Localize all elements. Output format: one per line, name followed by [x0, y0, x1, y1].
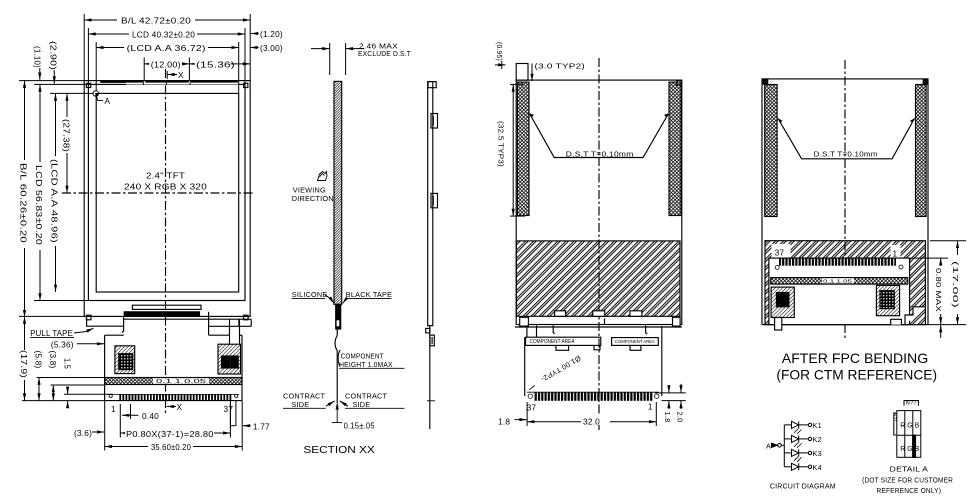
svg-text:D.S.T T=0.10mm: D.S.T T=0.10mm — [814, 149, 878, 158]
svg-text:K2: K2 — [813, 435, 822, 444]
svg-text:K4: K4 — [813, 463, 822, 472]
svg-text:B: B — [915, 446, 920, 453]
svg-text:CIRCUIT DIAGRAM: CIRCUIT DIAGRAM — [770, 482, 836, 491]
svg-text:A: A — [105, 96, 111, 106]
svg-text:B/L 60.26±0.20: B/L 60.26±0.20 — [19, 163, 29, 243]
svg-text:DETAIL A: DETAIL A — [890, 465, 928, 474]
svg-text:(32.5 TYP3): (32.5 TYP3) — [496, 121, 505, 167]
svg-text:(3.6): (3.6) — [74, 428, 92, 438]
svg-text:(DOT SIZE FOR CUSTOMER: (DOT SIZE FOR CUSTOMER — [862, 475, 953, 484]
svg-text:K3: K3 — [813, 449, 822, 458]
svg-text:1.8: 1.8 — [498, 417, 510, 427]
svg-text:PULL TAPE: PULL TAPE — [30, 328, 73, 338]
svg-text:A: A — [766, 441, 771, 450]
svg-text:REFERENCE ONLY): REFERENCE ONLY) — [877, 486, 942, 495]
svg-text:32.0: 32.0 — [583, 417, 600, 427]
svg-text:SECTION XX: SECTION XX — [303, 444, 374, 456]
svg-text:1.5: 1.5 — [63, 358, 73, 369]
svg-text:(LCD A.A 48.96): (LCD A.A 48.96) — [50, 159, 60, 243]
svg-text:R: R — [900, 423, 905, 430]
svg-text:(3.00): (3.00) — [260, 43, 283, 53]
svg-text:0.1 1.05: 0.1 1.05 — [823, 279, 853, 284]
svg-text:DIRECTION: DIRECTION — [292, 194, 334, 203]
svg-text:(LCD A.A 36.72): (LCD A.A 36.72) — [127, 43, 206, 53]
svg-text:D.S.T T=0.10mm: D.S.T T=0.10mm — [566, 150, 634, 159]
svg-text:37: 37 — [224, 404, 234, 414]
svg-text:(17.00): (17.00) — [951, 261, 960, 308]
svg-text:X: X — [178, 70, 184, 80]
svg-text:(3.0 TYP2): (3.0 TYP2) — [535, 62, 586, 71]
svg-text:SIDE: SIDE — [292, 400, 310, 409]
svg-text:2.4" TFT: 2.4" TFT — [146, 171, 185, 181]
svg-text:SILICONE: SILICONE — [292, 290, 328, 299]
svg-text:HEIGHT 1.0MAX: HEIGHT 1.0MAX — [339, 360, 393, 369]
svg-text:COMPONENT AREA: COMPONENT AREA — [615, 339, 655, 344]
svg-text:0.15±.05: 0.15±.05 — [344, 420, 375, 430]
svg-text:1: 1 — [893, 249, 898, 259]
svg-text:35.60±0.20: 35.60±0.20 — [151, 442, 191, 452]
svg-text:P0.80X(37-1)=28.80: P0.80X(37-1)=28.80 — [126, 429, 214, 439]
svg-text:2.0: 2.0 — [676, 412, 685, 423]
svg-text:B: B — [915, 423, 920, 430]
svg-text:0.1 1 0.05: 0.1 1 0.05 — [156, 379, 206, 385]
svg-text:LCD 40.32±0.20: LCD 40.32±0.20 — [132, 30, 195, 40]
svg-text:AFTER FPC BENDING: AFTER FPC BENDING — [782, 350, 928, 366]
svg-text:LCD 56.83±0.20: LCD 56.83±0.20 — [34, 165, 44, 245]
svg-text:1: 1 — [648, 402, 653, 412]
svg-text:(5.36): (5.36) — [51, 339, 74, 349]
svg-text:EXCLUDE D.S.T: EXCLUDE D.S.T — [358, 49, 411, 58]
svg-text:(0.95): (0.95) — [495, 42, 504, 61]
svg-text:240 X RGB X 320: 240 X RGB X 320 — [124, 182, 207, 192]
svg-text:N??: N?? — [893, 413, 898, 422]
svg-text:(17.9): (17.9) — [19, 350, 29, 378]
svg-text:(1.10): (1.10) — [33, 46, 43, 68]
svg-text:X: X — [177, 402, 183, 412]
svg-text:G: G — [907, 446, 912, 453]
svg-text:K1: K1 — [813, 421, 822, 430]
svg-text:1.8: 1.8 — [663, 412, 672, 423]
svg-text:37: 37 — [527, 403, 537, 413]
svg-text:0.80 MAX: 0.80 MAX — [934, 268, 943, 312]
svg-text:R: R — [900, 446, 905, 453]
svg-text:SIDE: SIDE — [353, 400, 371, 409]
svg-text:(15.36): (15.36) — [196, 59, 235, 69]
svg-text:B/L 42.72±0.20: B/L 42.72±0.20 — [121, 16, 191, 26]
svg-text:(12.00): (12.00) — [151, 59, 181, 69]
svg-text:(1.20): (1.20) — [260, 29, 283, 39]
svg-text:(5.8): (5.8) — [34, 351, 44, 369]
svg-text:1: 1 — [111, 404, 116, 414]
svg-text:(27.38): (27.38) — [62, 119, 72, 152]
svg-text:37: 37 — [775, 248, 785, 258]
svg-text:(3.8): (3.8) — [48, 351, 58, 369]
svg-text:N??: N?? — [906, 400, 918, 406]
svg-text:1.77: 1.77 — [253, 421, 270, 431]
svg-text:COMPONENT AREA: COMPONENT AREA — [530, 339, 576, 345]
svg-text:0.40: 0.40 — [142, 411, 159, 421]
svg-text:(FOR CTM REFERENCE): (FOR CTM REFERENCE) — [776, 367, 937, 383]
svg-text:G: G — [907, 423, 912, 430]
svg-text:(2.90): (2.90) — [49, 41, 59, 70]
svg-text:BLACK TAPE: BLACK TAPE — [346, 290, 392, 299]
